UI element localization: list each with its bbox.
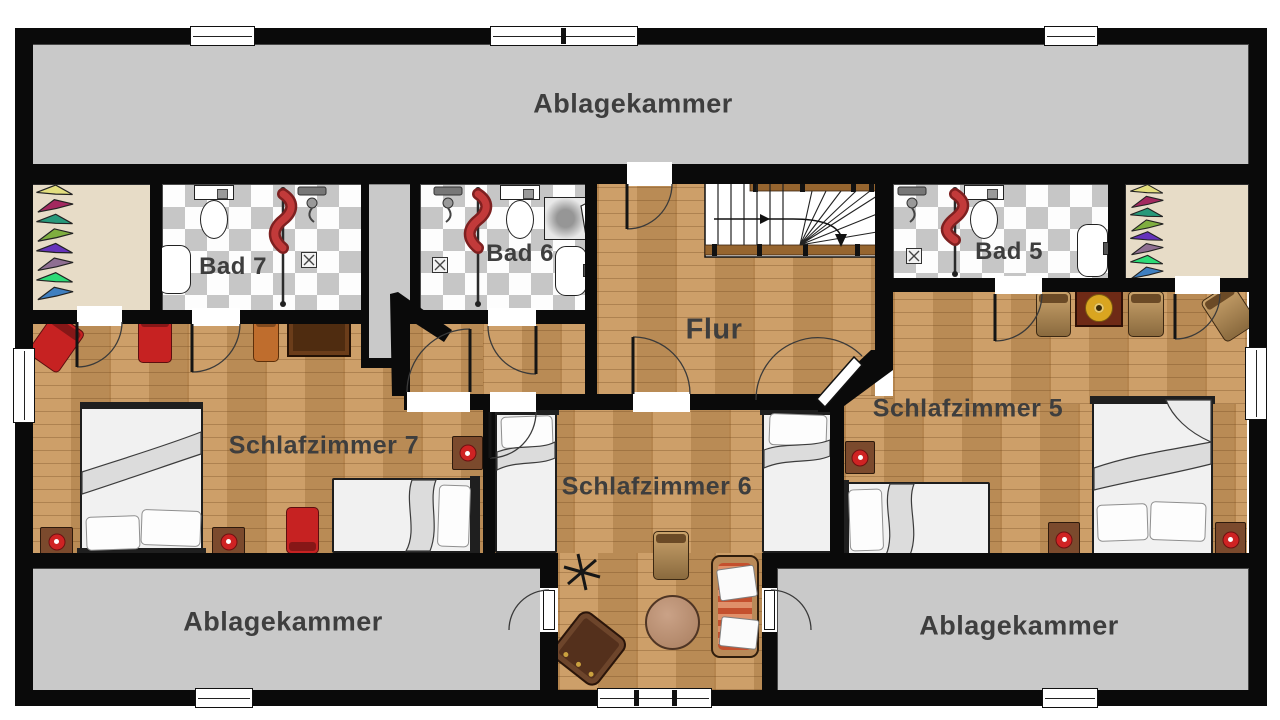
lamp-icon: [459, 445, 476, 462]
drain-icon: [906, 248, 922, 264]
chair-brown-icon: [1128, 291, 1164, 337]
wall: [585, 184, 597, 410]
label-bath6: Bad 6: [486, 240, 554, 268]
toilet-icon: [200, 200, 228, 239]
gold-lamp-icon: [1085, 294, 1113, 322]
wall: [31, 553, 558, 568]
lamp-icon: [48, 533, 65, 550]
label-storage-bottom-left: Ablagekammer: [183, 607, 383, 638]
wall: [1108, 184, 1125, 292]
toilet-icon: [506, 200, 534, 239]
wall: [875, 278, 1110, 292]
lamp-icon: [220, 533, 237, 550]
nightstand-icon: [845, 441, 875, 474]
pillow-icon: [437, 484, 471, 547]
drain-icon: [301, 252, 317, 268]
door-opening: [1175, 276, 1220, 294]
nightstand-icon: [452, 436, 483, 470]
sink-icon: [157, 245, 191, 294]
chair-red-icon: [286, 507, 319, 554]
room-hallway: [597, 184, 875, 396]
door-leaf: [543, 590, 555, 630]
nightstand-icon: [212, 527, 245, 556]
lamp-icon: [1222, 531, 1239, 548]
window: [1044, 26, 1098, 46]
label-bedroom7: Schlafzimmer 7: [229, 432, 419, 461]
label-hallway: Flur: [686, 314, 743, 347]
wall: [597, 394, 823, 410]
toilet-cistern-icon: [500, 185, 540, 200]
nightstand-icon: [40, 527, 73, 556]
window-mullion: [634, 690, 639, 706]
drain-icon: [432, 257, 448, 273]
desk-chair-icon: [653, 531, 689, 580]
wall: [150, 184, 162, 324]
shower-cabin-icon: [544, 197, 587, 240]
pillow-icon: [768, 413, 827, 447]
room-closet-left: [31, 184, 152, 312]
door-opening: [633, 392, 690, 412]
door-opening: [627, 162, 672, 186]
window: [1245, 347, 1267, 420]
nightstand-icon: [1215, 522, 1246, 557]
bed-frame: [470, 476, 480, 555]
table-lamp-icon: [1075, 288, 1123, 327]
label-bedroom6: Schlafzimmer 6: [562, 473, 752, 502]
bed-frame: [1090, 396, 1215, 404]
chair-brown-icon: [1036, 291, 1071, 337]
wall: [830, 394, 844, 559]
bed-frame: [80, 402, 203, 409]
wall: [361, 184, 369, 366]
door-opening: [995, 276, 1042, 294]
window: [1042, 688, 1098, 708]
round-table-icon: [645, 595, 700, 650]
window-mullion: [672, 690, 677, 706]
label-bath7: Bad 7: [199, 253, 267, 281]
label-bath5: Bad 5: [975, 238, 1043, 266]
toilet-cistern-icon: [964, 185, 1004, 200]
window: [597, 688, 712, 708]
door-opening: [490, 392, 536, 412]
window: [195, 688, 253, 708]
pillow-icon: [500, 415, 553, 449]
room-bath7: [162, 184, 363, 314]
wall: [410, 184, 420, 324]
door-opening: [192, 308, 240, 326]
sofa-icon: [711, 555, 759, 658]
window: [190, 26, 255, 46]
window-mullion: [561, 28, 566, 44]
door-opening: [77, 306, 122, 326]
label-storage-top: Ablagekammer: [533, 89, 733, 120]
pillow-icon: [140, 509, 201, 547]
label-storage-bottom-right: Ablagekammer: [919, 611, 1119, 642]
pillow-icon: [85, 515, 140, 551]
pillow-icon: [1096, 503, 1148, 542]
wall: [361, 358, 397, 368]
wall: [875, 184, 893, 360]
pillow-icon: [848, 488, 884, 551]
toilet-cistern-icon: [194, 185, 234, 200]
door-leaf: [764, 590, 775, 630]
wall: [762, 553, 1250, 568]
pillow-icon: [1149, 501, 1206, 542]
window: [13, 348, 35, 423]
toilet-icon: [970, 200, 998, 239]
nightstand-icon: [1048, 522, 1080, 557]
wall: [483, 394, 495, 559]
room-closet-right: [1125, 184, 1249, 282]
lamp-icon: [1056, 531, 1073, 548]
label-bedroom5: Schlafzimmer 5: [873, 395, 1063, 424]
lamp-icon: [852, 449, 869, 466]
floor-plan: Ablagekammer Bad 7 Bad 6 Bad 5 Flur Schl…: [0, 0, 1280, 720]
door-opening: [407, 392, 470, 412]
door-opening: [488, 308, 536, 326]
